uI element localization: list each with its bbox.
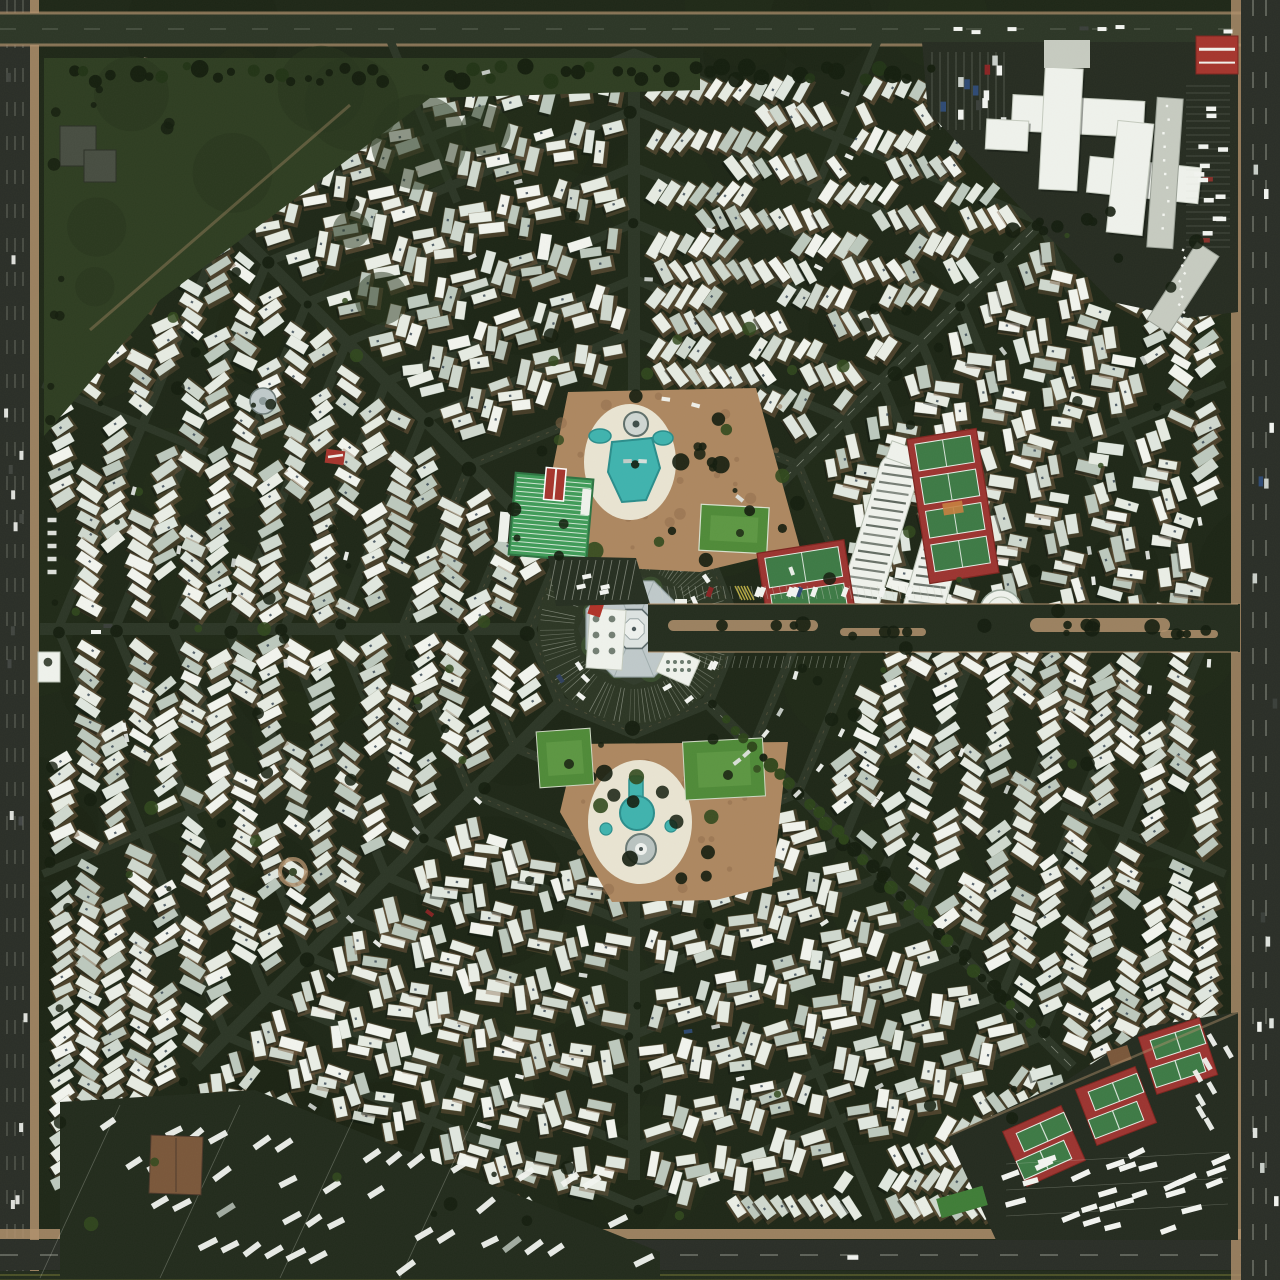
photo-grain bbox=[0, 0, 1280, 1280]
aerial-photo-frame bbox=[0, 0, 1280, 1280]
trailer-park-aerial-photo bbox=[0, 0, 1280, 1280]
